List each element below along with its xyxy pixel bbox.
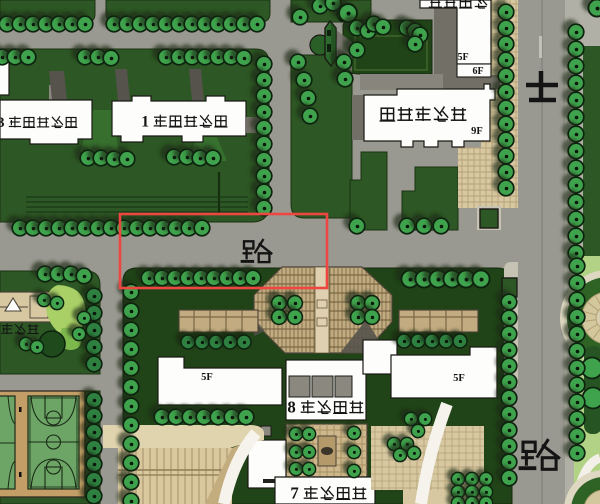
svg-text:1: 1 <box>141 113 149 130</box>
svg-text:5F: 5F <box>453 373 465 384</box>
svg-text:8: 8 <box>287 398 295 417</box>
svg-text:6F: 6F <box>472 66 483 77</box>
svg-text:7: 7 <box>290 484 298 503</box>
svg-text:3: 3 <box>0 115 5 131</box>
svg-text:5F: 5F <box>201 372 213 383</box>
svg-text:9F: 9F <box>471 126 483 137</box>
svg-text:5F: 5F <box>457 52 468 63</box>
